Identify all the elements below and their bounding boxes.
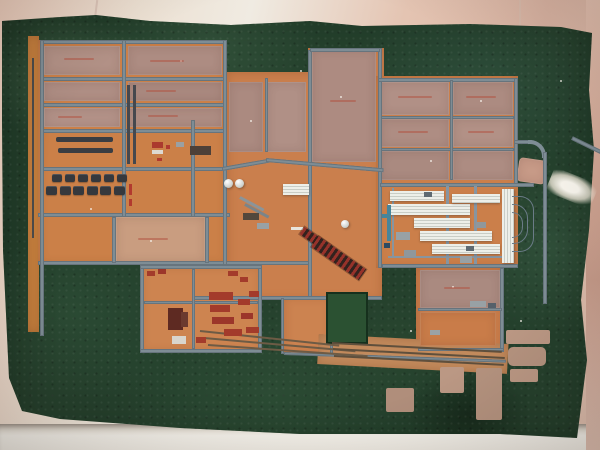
shed-red-top-2 (158, 269, 166, 274)
shed-red-3 (212, 317, 234, 324)
tank-dark-12 (114, 186, 125, 195)
road-v205 (205, 217, 209, 263)
marking-red-2 (150, 60, 184, 62)
road-v-west (40, 40, 44, 336)
shed-red-2 (210, 305, 230, 312)
tank-dark-1 (52, 174, 62, 182)
pad-dark-2 (466, 246, 474, 251)
marking-red-11 (58, 116, 82, 118)
unit-dark-el (488, 303, 496, 308)
road-v308 (308, 50, 312, 298)
patch-tan-4 (476, 368, 502, 420)
marking-red-8 (398, 131, 428, 133)
tank-dark-3 (78, 174, 88, 182)
road-h167 (40, 167, 227, 171)
marking-red-10 (138, 238, 168, 240)
shed-red-9 (249, 291, 259, 297)
mill-building-5 (420, 231, 492, 241)
sphere-tank-1 (224, 179, 233, 188)
rail-twin-left-2 (133, 85, 136, 164)
sphere-tank-2 (235, 179, 244, 188)
block-e1 (381, 82, 449, 115)
road-h213 (38, 213, 230, 217)
patch-tan-3 (510, 369, 538, 382)
block-tall (312, 50, 376, 162)
warehouse-long-2 (58, 148, 113, 153)
block-e4 (453, 119, 513, 147)
unit-teal (382, 214, 390, 218)
speck-11 (410, 330, 412, 332)
block-e5 (381, 151, 449, 180)
dots-white-row (291, 227, 303, 230)
shed-red-7 (246, 327, 259, 333)
road-e-v451 (450, 80, 453, 180)
block-south-orange (420, 312, 496, 346)
tank-dark-9 (73, 186, 84, 195)
quarry-white (545, 167, 599, 209)
speck-9 (560, 80, 562, 82)
shed-red-5 (238, 299, 250, 305)
road-exit-east (571, 136, 600, 154)
pad-gray-1 (396, 232, 410, 240)
block-c2 (128, 108, 222, 127)
shed-red-6 (241, 313, 253, 319)
marker-red-1 (129, 184, 132, 195)
block-mid2 (267, 82, 306, 152)
unit-red-roof (152, 142, 163, 148)
tank-dark-10 (87, 186, 98, 195)
warehouse-long-1 (56, 137, 113, 142)
speck-4 (430, 160, 432, 162)
speck-7 (520, 320, 522, 322)
marking-red-12 (444, 287, 470, 289)
tank-dark-6 (117, 174, 127, 182)
tank-dark-7 (46, 186, 57, 195)
marking-red-6 (398, 96, 432, 98)
tank-dark-4 (91, 174, 101, 182)
pad-gray-2 (404, 250, 416, 257)
road-v545 (543, 152, 547, 304)
block-mid1 (229, 82, 263, 152)
road-e-top (378, 78, 518, 82)
patch-tan-6 (386, 388, 414, 412)
pad-gray-3 (460, 256, 472, 263)
road-v191 (191, 120, 195, 217)
road-v222 (223, 40, 227, 265)
road-sc-bottom (140, 349, 262, 353)
road-h183 (380, 183, 534, 187)
marking-red-7 (466, 96, 496, 98)
shed-red-top-3 (228, 271, 238, 276)
shed-red-4 (224, 329, 242, 336)
block-a1 (44, 46, 120, 75)
unit-gray-el2 (430, 330, 440, 335)
mill-building-1 (390, 191, 444, 201)
tank-dark-5 (104, 174, 114, 182)
road-sc-left (140, 265, 144, 353)
patch-tan-1 (506, 330, 550, 344)
unit-gray-center (257, 223, 269, 229)
road-top (40, 40, 227, 44)
shed-red-1 (209, 292, 233, 300)
speck-10 (250, 120, 252, 122)
block-c1 (44, 108, 120, 127)
unit-red-dot2 (157, 158, 162, 161)
rail-twin-left-1 (127, 85, 130, 164)
unit-blue-dark (384, 243, 390, 248)
unit-white (152, 150, 163, 154)
road-e-h117 (381, 116, 514, 119)
dome-white (341, 220, 349, 228)
mill-building-3 (452, 194, 500, 203)
plant-site-model (0, 0, 600, 450)
speck-3 (480, 100, 482, 102)
unit-gray-el (470, 301, 486, 307)
block-e3 (381, 119, 449, 147)
plant-maroon-2 (181, 312, 188, 327)
rail-strip-line (32, 58, 34, 238)
tank-dark-2 (65, 174, 75, 182)
pad-gray-4 (476, 222, 486, 228)
building-white-striped-small (283, 184, 309, 195)
marking-red-9 (468, 131, 494, 133)
shed-red-top-4 (240, 277, 248, 282)
tank-dark-8 (60, 186, 71, 195)
mill-building-2 (388, 204, 470, 215)
road-tall-top (310, 48, 380, 52)
unit-white-south (172, 336, 186, 344)
unit-brown-center (243, 213, 259, 220)
pad-dark-1 (424, 192, 432, 197)
field-green (326, 292, 368, 344)
marking-red-5 (330, 100, 356, 102)
road-v113 (112, 217, 116, 263)
unit-red-dot (166, 145, 170, 149)
road-e-h309 (418, 308, 502, 311)
shed-red-8 (196, 337, 206, 343)
block-b1 (44, 82, 120, 101)
patch-tan-2 (508, 347, 546, 366)
road-sc-right (258, 265, 262, 353)
unit-gray (176, 142, 184, 147)
block-e6 (453, 151, 513, 180)
photo-of-plant-model (0, 0, 600, 450)
tank-dark-11 (100, 186, 111, 195)
speck-2 (340, 96, 342, 98)
shed-red-top-1 (147, 271, 155, 276)
road-v267 (265, 78, 268, 152)
speck-6 (150, 240, 152, 242)
block-e2 (453, 82, 513, 115)
marking-red-3 (146, 90, 176, 92)
road-h265e (382, 264, 518, 268)
speck-8 (90, 208, 92, 210)
mill-building-4 (414, 218, 470, 228)
marking-red-4 (148, 115, 178, 117)
marker-red-2 (129, 199, 132, 206)
road-h77 (40, 77, 227, 81)
unit-dark-rows (190, 146, 211, 155)
road-sc-v192 (192, 269, 195, 349)
patch-tan-5 (440, 367, 464, 393)
road-e-v514 (514, 78, 518, 187)
marking-red-1 (64, 58, 94, 60)
road-e-h148 (381, 148, 514, 151)
tower-teal (387, 205, 391, 241)
road-sp-left (281, 298, 284, 354)
speck-12 (300, 70, 302, 72)
